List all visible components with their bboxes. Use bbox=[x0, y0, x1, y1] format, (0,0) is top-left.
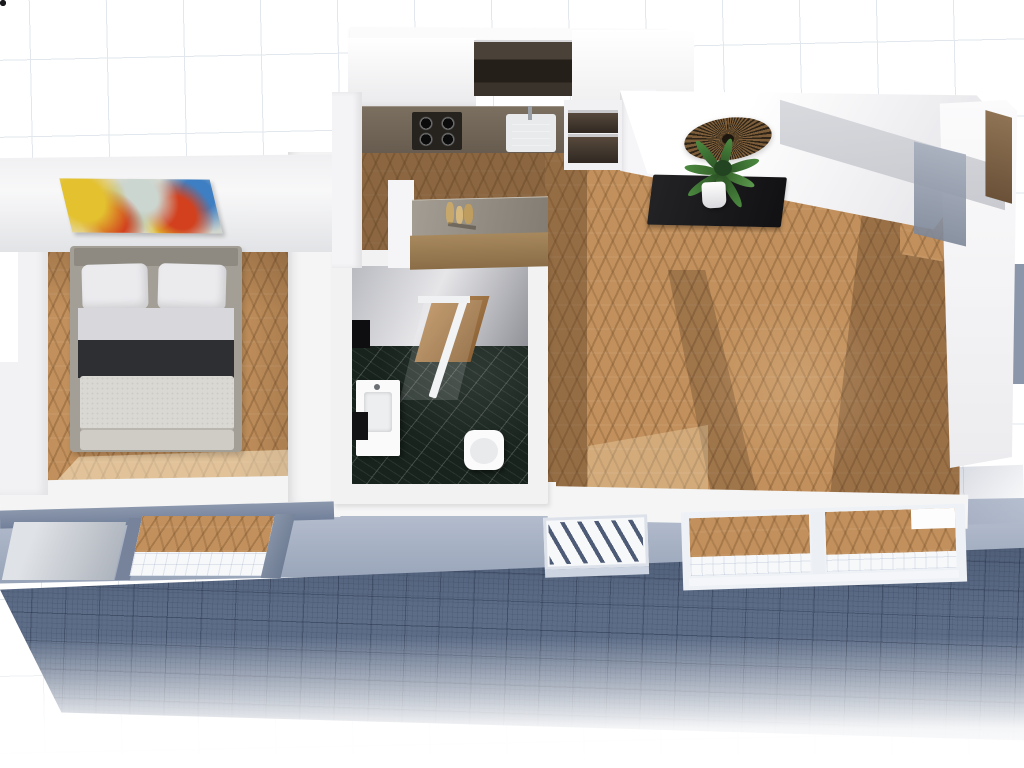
bottle bbox=[464, 204, 473, 224]
wooden-entry-door bbox=[986, 110, 1012, 203]
sink-faucet bbox=[528, 106, 532, 120]
bottle-shadow bbox=[448, 222, 476, 230]
pane-wood-floor-view bbox=[689, 514, 810, 557]
picture-window-mullion bbox=[811, 512, 825, 574]
double-oven-column bbox=[564, 100, 622, 170]
toilet bbox=[464, 430, 504, 470]
abstract-wall-art bbox=[59, 178, 222, 233]
living-light-pool bbox=[700, 290, 890, 480]
picture-window-left-pane bbox=[689, 514, 811, 576]
glazing-pane-reflective bbox=[2, 522, 126, 580]
picture-window-right-pane bbox=[825, 508, 957, 572]
black-towel bbox=[352, 320, 370, 348]
bed-headboard bbox=[74, 248, 238, 266]
pane-wood-floor-view bbox=[135, 516, 275, 552]
glazing-pane-interior-view bbox=[130, 516, 275, 576]
balcony-glazed-doors bbox=[0, 504, 334, 588]
picture-window bbox=[681, 504, 967, 591]
vanity-faucet bbox=[374, 384, 380, 390]
pane-white-sill-view bbox=[130, 552, 267, 576]
bed-throw-blanket bbox=[78, 340, 234, 378]
kitchen-upper-cabinet bbox=[348, 38, 476, 112]
island-wood-front bbox=[410, 232, 548, 270]
pillow bbox=[157, 263, 226, 311]
pane-white-sill-view bbox=[826, 551, 956, 572]
louvre-window bbox=[543, 514, 649, 570]
bed-sheet bbox=[78, 308, 234, 342]
kitchen-extractor-recess bbox=[474, 40, 574, 96]
facade-bottom-fade bbox=[0, 636, 1024, 768]
pillow bbox=[81, 263, 148, 311]
louvre-slats bbox=[548, 519, 643, 564]
black-towel bbox=[352, 412, 368, 440]
bottle bbox=[446, 202, 454, 224]
wall-oven bbox=[568, 134, 618, 163]
shower-frame-bar bbox=[418, 296, 470, 303]
kitchen-sink bbox=[506, 114, 556, 152]
sink-basin bbox=[512, 122, 550, 146]
pane-white-sill-view bbox=[690, 554, 811, 576]
gas-hob bbox=[412, 112, 462, 150]
double-bed bbox=[70, 246, 242, 452]
chair-back bbox=[0, 0, 6, 6]
white-table-vase bbox=[701, 181, 726, 208]
bottles-on-island bbox=[444, 200, 478, 232]
bedroom-side-window bbox=[0, 252, 18, 362]
entry-glass-opening bbox=[914, 142, 966, 247]
bathroom-interior bbox=[352, 266, 528, 484]
bed-end-bench bbox=[80, 430, 234, 450]
wall-notch bbox=[911, 508, 956, 529]
bed-duvet bbox=[80, 376, 234, 430]
wall-oven bbox=[568, 110, 618, 133]
bottle bbox=[456, 206, 463, 224]
vanity-basin bbox=[364, 392, 392, 432]
palm-center bbox=[714, 160, 732, 176]
floorplan-3d-render bbox=[0, 0, 1024, 768]
kitchen-west-wall bbox=[332, 92, 362, 268]
floor-shadow bbox=[545, 146, 587, 496]
